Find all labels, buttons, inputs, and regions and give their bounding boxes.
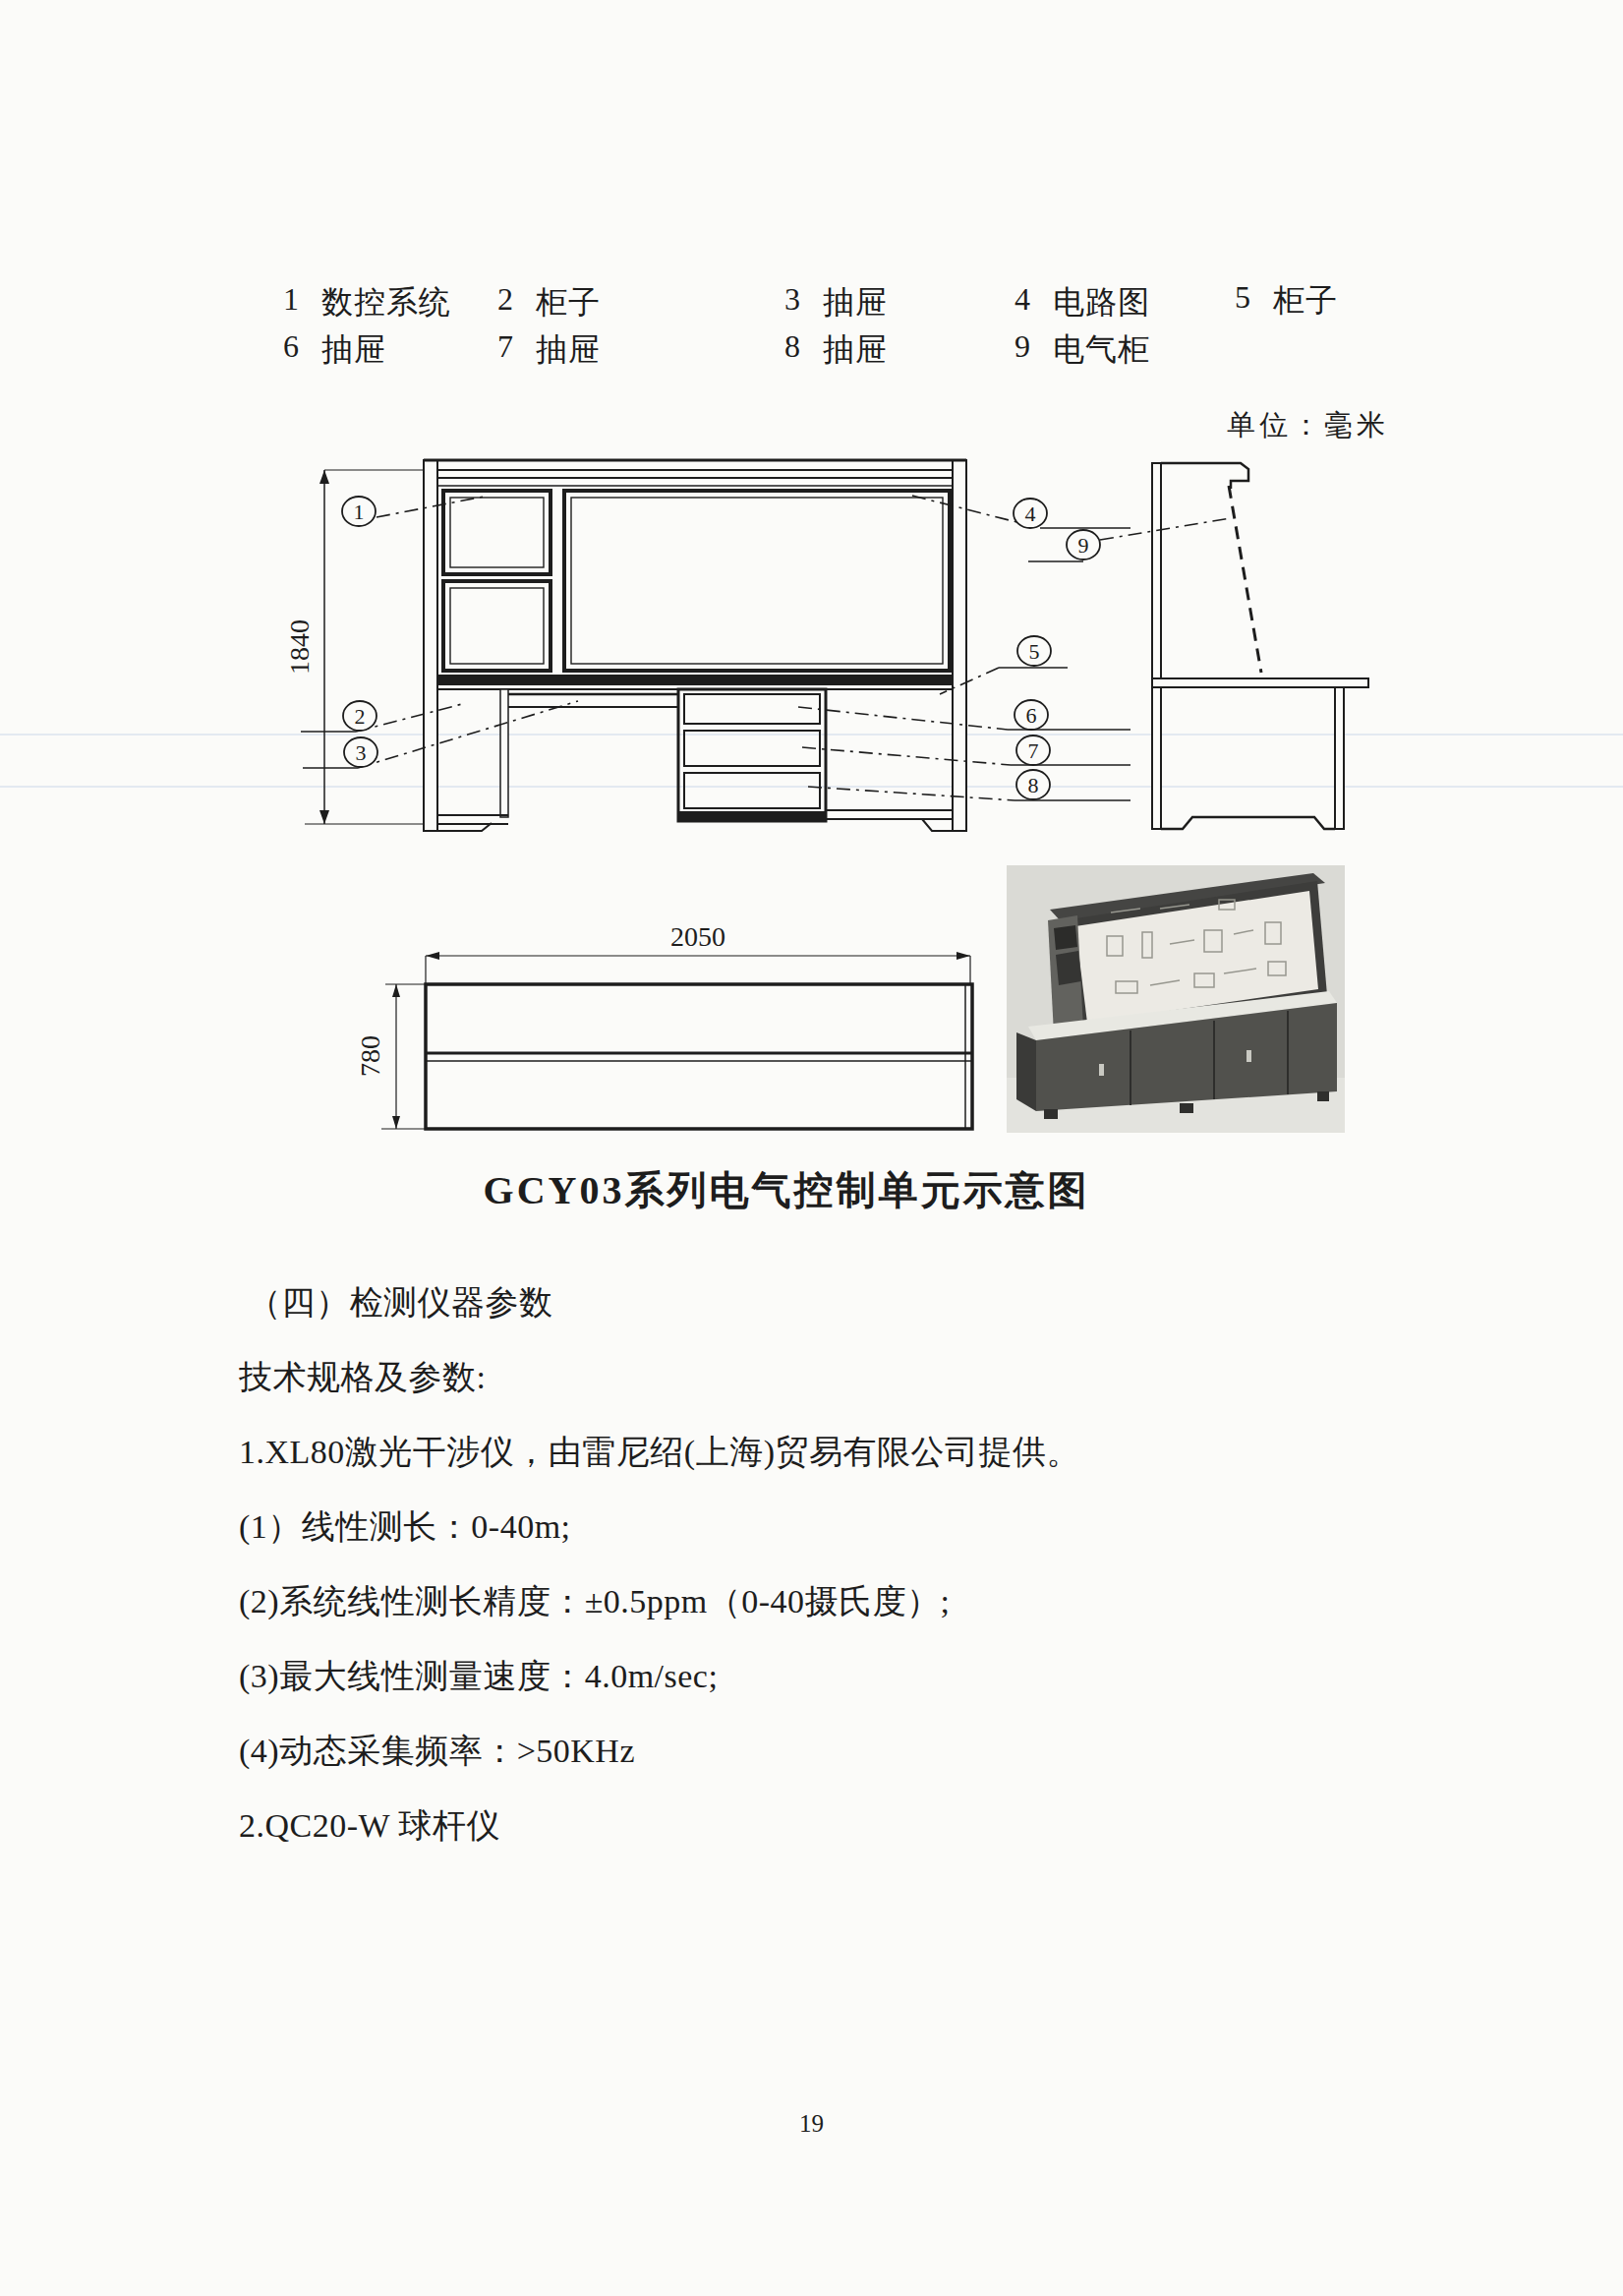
circuit-diagram-panel (564, 491, 950, 671)
legend-item-4: 4 电路图 (1014, 281, 1150, 324)
side-top-rail (1161, 463, 1248, 489)
dim-height-value: 1840 (284, 619, 315, 675)
callout-number-9: 9 (1078, 533, 1089, 558)
callout-number-4: 4 (1025, 501, 1036, 526)
callout-circles: 1 2 3 4 5 6 7 8 9 (342, 497, 1100, 799)
legend-number: 6 (283, 328, 300, 372)
legend-number: 4 (1014, 281, 1031, 324)
legend-label: 电路图 (1053, 281, 1150, 324)
top-view-outline (426, 984, 972, 1129)
panel-lower-left (443, 581, 551, 671)
cabinet-left-wall (424, 460, 437, 831)
dimension-depth: 780 (355, 984, 489, 1129)
top-view: 2050 780 (355, 921, 972, 1129)
legend-label: 电气柜 (1053, 328, 1150, 372)
legend-item-9: 9 电气柜 (1014, 328, 1150, 372)
spec-line: (4)动态采集频率：>50KHz (239, 1729, 635, 1774)
product-photo (1007, 865, 1345, 1133)
legend-number: 9 (1014, 328, 1031, 372)
side-view (1152, 463, 1368, 829)
spec-line: 技术规格及参数: (239, 1355, 486, 1400)
spec-line: 2.QC20-W 球杆仪 (239, 1803, 500, 1849)
spec-line: 1.XL80激光干涉仪，由雷尼绍(上海)贸易有限公司提供。 (239, 1430, 1080, 1475)
photo-crt-screen (1054, 925, 1077, 950)
callout-number-3: 3 (356, 740, 367, 765)
drawer-1 (684, 694, 820, 724)
legend-label: 抽屉 (823, 281, 888, 324)
legend-number: 8 (784, 328, 801, 372)
legend-label: 柜子 (536, 281, 601, 324)
cabinet-base-right (826, 810, 953, 831)
section-heading: （四）检测仪器参数 (248, 1280, 553, 1325)
page-number: 19 (0, 2110, 1623, 2138)
cnc-panel-upper-left (443, 491, 551, 574)
legend-item-6: 6 抽屉 (283, 328, 386, 372)
leader-8 (808, 787, 1014, 800)
legend-number: 2 (497, 281, 514, 324)
dimension-width: 2050 (426, 921, 970, 984)
legend-label: 数控系统 (321, 281, 451, 324)
desktop-band (437, 675, 953, 685)
legend-number: 7 (497, 328, 514, 372)
legend-label: 抽屉 (321, 328, 386, 372)
callout-number-5: 5 (1029, 639, 1040, 664)
leader-9 (1100, 518, 1231, 540)
callout-number-2: 2 (355, 704, 366, 729)
technical-drawing: 1840 (265, 442, 1435, 1150)
photo-foot (1317, 1091, 1329, 1101)
leader-3 (358, 701, 578, 768)
photo-foot (1180, 1103, 1193, 1113)
keyboard-drawer-strip (508, 694, 678, 707)
legend-label: 抽屉 (823, 328, 888, 372)
callout-number-7: 7 (1028, 738, 1039, 763)
photo-control-keypad (1056, 951, 1081, 985)
inclined-panel-dashed (1229, 486, 1261, 673)
document-page: 1 数控系统 2 柜子 3 抽屉 4 电路图 5 柜子 6 抽屉 7 抽屉 8 (0, 0, 1623, 2296)
side-cabinet-base (1161, 817, 1335, 829)
drawer-2 (684, 731, 820, 766)
callout-number-1: 1 (354, 500, 365, 524)
legend-item-1: 1 数控系统 (283, 281, 451, 324)
legend-item-5: 5 柜子 (1235, 279, 1338, 323)
legend-number: 1 (283, 281, 300, 324)
legend-label: 抽屉 (536, 328, 601, 372)
drawer-unit (678, 689, 826, 821)
dim-width-value: 2050 (670, 921, 725, 952)
legend-item-3: 3 抽屉 (784, 281, 888, 324)
callout-number-8: 8 (1028, 773, 1039, 797)
unit-note: 单位：毫米 (1227, 406, 1389, 445)
legend-item-2: 2 柜子 (497, 281, 601, 324)
legend-number: 3 (784, 281, 801, 324)
legend-label: 柜子 (1273, 279, 1338, 323)
leader-6 (798, 707, 1008, 730)
legend-item-8: 8 抽屉 (784, 328, 888, 372)
spec-line: (2)系统线性测长精度：±0.5ppm（0-40摄氏度）; (239, 1579, 951, 1624)
photo-door-handle (1099, 1064, 1104, 1076)
side-desk-surface (1152, 678, 1368, 687)
legend-number: 5 (1235, 279, 1251, 323)
cabinet-right-wall (953, 460, 966, 831)
cabinet-top-rails (424, 460, 966, 486)
side-back-panel (1152, 463, 1161, 829)
legend-item-7: 7 抽屉 (497, 328, 601, 372)
side-cabinet-front-wall (1335, 687, 1344, 829)
spec-line: (1）线性测长：0-40m; (239, 1504, 571, 1550)
figure-caption: GCY03系列电气控制单元示意图 (393, 1163, 1180, 1217)
photo-side-cabinet (1016, 1032, 1036, 1111)
callout-number-6: 6 (1026, 703, 1037, 728)
spec-line: (3)最大线性测量速度：4.0m/sec; (239, 1654, 718, 1699)
photo-foot (1044, 1109, 1058, 1119)
dim-depth-value: 780 (355, 1035, 385, 1077)
drawer-3 (684, 773, 820, 808)
leader-7 (802, 747, 1011, 765)
photo-door-handle (1246, 1050, 1251, 1062)
